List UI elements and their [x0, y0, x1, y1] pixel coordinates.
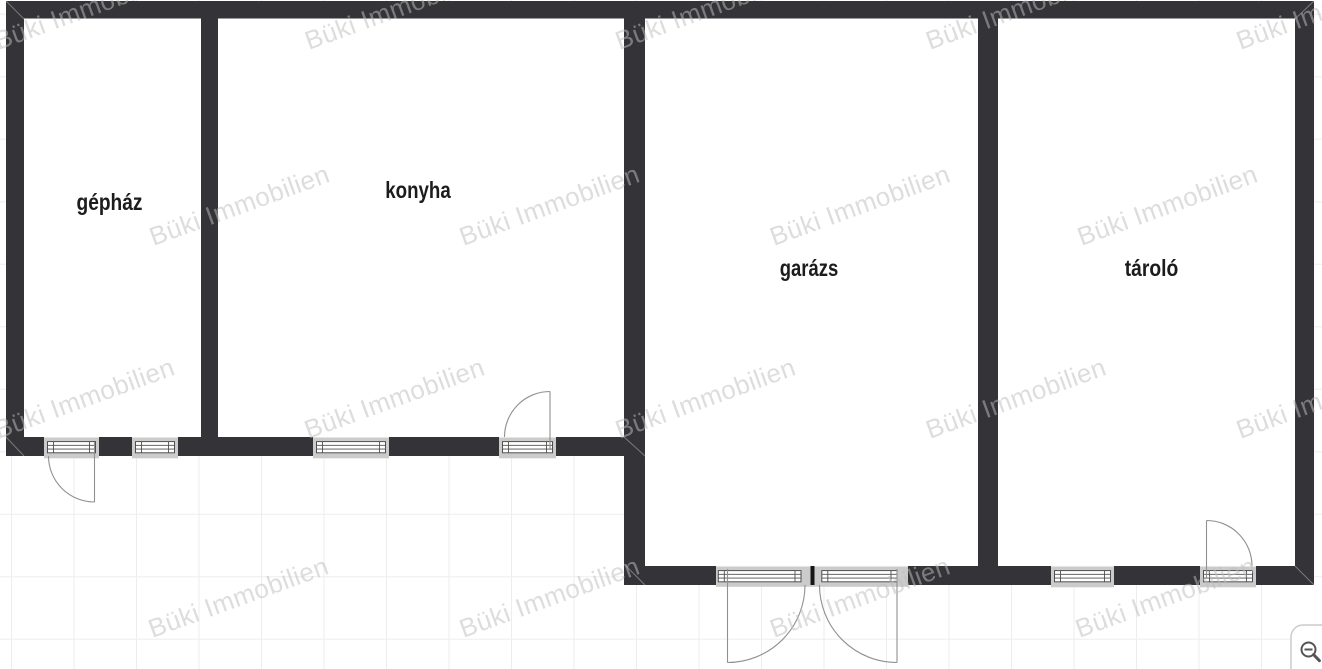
svg-text:gépház: gépház [77, 189, 143, 215]
svg-text:tároló: tároló [1125, 255, 1179, 281]
svg-text:konyha: konyha [385, 177, 451, 203]
svg-text:garázs: garázs [780, 255, 839, 281]
